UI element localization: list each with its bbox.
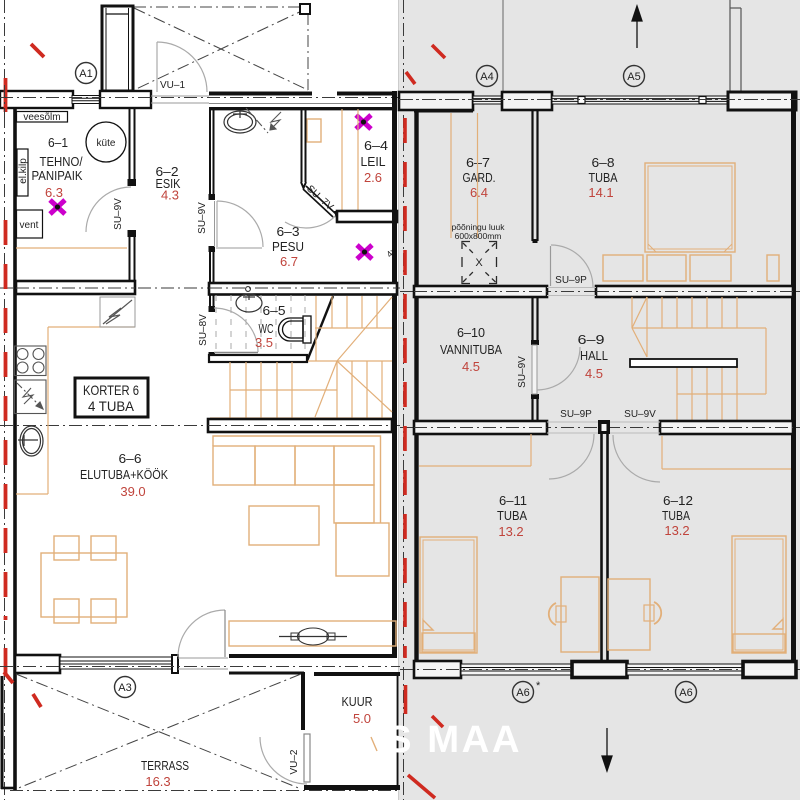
svg-text:A3: A3: [118, 682, 131, 694]
svg-text:A6: A6: [679, 687, 692, 699]
svg-text:SU–9V: SU–9V: [624, 409, 656, 420]
svg-text:KORTER 6: KORTER 6: [83, 382, 139, 398]
svg-text:*: *: [536, 680, 541, 692]
svg-text:4.5: 4.5: [462, 359, 480, 374]
svg-text:4.3: 4.3: [161, 188, 179, 203]
svg-text:6.4: 6.4: [470, 185, 488, 200]
svg-text:TUBA: TUBA: [662, 508, 690, 523]
svg-text:A6: A6: [516, 687, 529, 699]
svg-text:VU–1: VU–1: [160, 80, 185, 91]
svg-text:WC: WC: [259, 321, 274, 336]
svg-text:3.5: 3.5: [255, 335, 273, 350]
svg-text:KUUR: KUUR: [342, 694, 373, 709]
svg-text:GARD.: GARD.: [463, 170, 496, 185]
svg-text:X: X: [475, 257, 483, 269]
svg-text:küte: küte: [97, 138, 116, 149]
svg-text:6–12: 6–12: [663, 493, 693, 508]
svg-text:VU–2: VU–2: [289, 749, 300, 774]
svg-text:6–9: 6–9: [578, 332, 605, 347]
svg-text:4.5: 4.5: [585, 366, 603, 381]
svg-text:A4: A4: [480, 71, 493, 83]
svg-text:13.2: 13.2: [498, 524, 523, 539]
svg-text:el.kilp: el.kilp: [18, 158, 29, 184]
svg-text:5.0: 5.0: [353, 711, 371, 726]
svg-text:6–1: 6–1: [48, 135, 68, 150]
svg-text:SU–9V: SU–9V: [517, 356, 528, 388]
svg-text:PESU: PESU: [272, 239, 304, 254]
svg-text:PANIPAIK: PANIPAIK: [32, 168, 83, 183]
svg-text:S MAA: S MAA: [386, 719, 522, 761]
svg-text:TUBA: TUBA: [589, 170, 618, 185]
svg-text:14.1: 14.1: [588, 185, 613, 200]
svg-text:TERRASS: TERRASS: [141, 758, 189, 773]
svg-text:SU–8V: SU–8V: [198, 314, 209, 346]
svg-text:SU–9P: SU–9P: [555, 275, 587, 286]
svg-text:A5: A5: [627, 71, 640, 83]
svg-text:2.6: 2.6: [364, 170, 382, 185]
svg-text:4 TUBA: 4 TUBA: [88, 398, 135, 414]
svg-text:6.7: 6.7: [280, 254, 298, 269]
svg-text:SU–9P: SU–9P: [560, 409, 592, 420]
svg-text:A1: A1: [79, 68, 92, 80]
svg-text:veesõlm: veesõlm: [23, 112, 60, 123]
svg-text:vent: vent: [20, 220, 39, 231]
svg-text:HALL: HALL: [580, 348, 608, 363]
svg-text:6–10: 6–10: [457, 325, 485, 340]
svg-text:ELUTUBA+KÖÖK: ELUTUBA+KÖÖK: [80, 467, 168, 482]
svg-text:6–6: 6–6: [119, 451, 142, 466]
svg-text:6–4: 6–4: [364, 138, 388, 153]
svg-text:VANNITUBA: VANNITUBA: [440, 342, 502, 357]
svg-text:SU–9V: SU–9V: [197, 202, 208, 234]
svg-text:6–8: 6–8: [592, 155, 615, 170]
svg-text:TUBA: TUBA: [497, 508, 527, 523]
svg-text:SU–9V: SU–9V: [113, 198, 124, 230]
svg-text:39.0: 39.0: [120, 484, 145, 499]
svg-text:13.2: 13.2: [664, 523, 689, 538]
svg-text:LEIL: LEIL: [361, 154, 386, 169]
svg-text:6–11: 6–11: [499, 493, 527, 508]
svg-text:600x800mm: 600x800mm: [455, 231, 502, 241]
svg-text:6–5: 6–5: [263, 303, 286, 318]
svg-text:6.3: 6.3: [45, 185, 63, 200]
svg-text:TEHNO/: TEHNO/: [40, 154, 83, 169]
svg-text:16.3: 16.3: [145, 774, 170, 789]
